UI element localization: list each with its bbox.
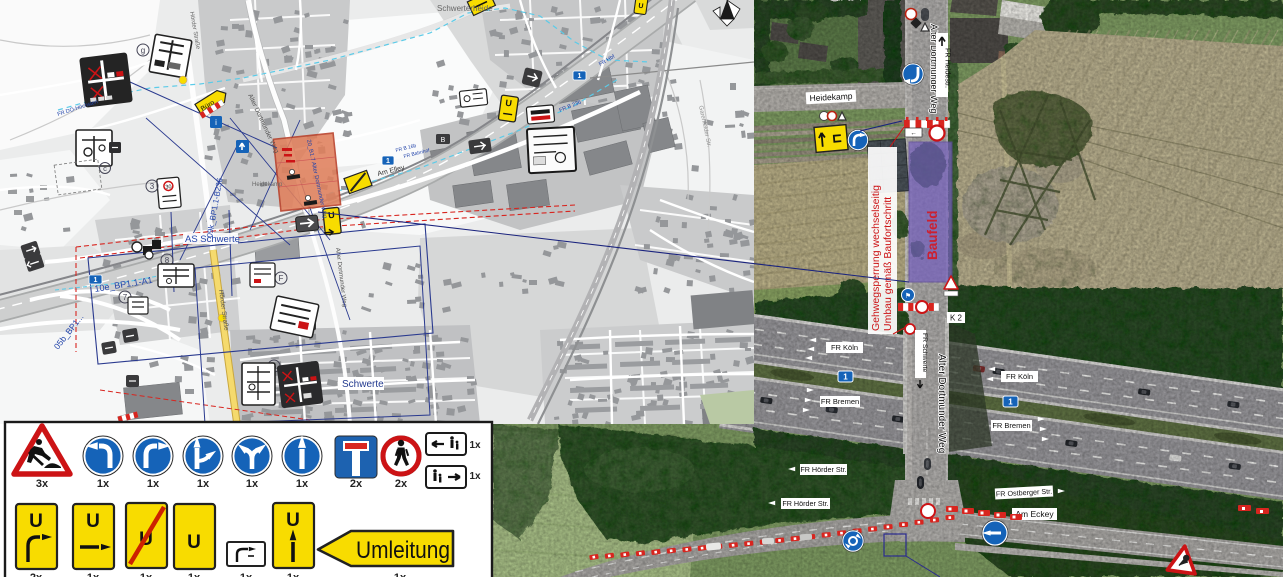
svg-text:2x: 2x <box>350 478 363 490</box>
svg-text:1x: 1x <box>97 478 110 490</box>
svg-text:Schwerterheide: Schwerterheide <box>437 4 493 13</box>
svg-text:FR Hörder Str.: FR Hörder Str. <box>800 465 846 474</box>
svg-text:U: U <box>187 532 201 553</box>
svg-text:1x: 1x <box>469 440 481 451</box>
svg-text:30: 30 <box>165 184 172 191</box>
svg-text:U: U <box>638 3 644 11</box>
svg-text:1x: 1x <box>197 478 210 490</box>
svg-text:1: 1 <box>1008 398 1013 407</box>
svg-text:1x: 1x <box>469 471 481 482</box>
svg-text:1: 1 <box>578 73 582 80</box>
svg-text:U: U <box>286 510 300 531</box>
svg-text:B: B <box>441 137 446 144</box>
svg-text:←: ← <box>910 130 917 137</box>
svg-text:1: 1 <box>843 373 848 382</box>
svg-text:3: 3 <box>150 182 155 191</box>
svg-text:c: c <box>103 164 107 173</box>
svg-text:3x: 3x <box>36 478 49 490</box>
svg-text:7: 7 <box>123 293 128 302</box>
svg-text:⚑: ⚑ <box>905 292 911 300</box>
svg-text:1x: 1x <box>296 478 309 490</box>
svg-text:1x: 1x <box>188 572 201 577</box>
svg-text:1: 1 <box>386 158 390 165</box>
svg-text:g: g <box>141 46 145 55</box>
svg-text:1x: 1x <box>140 572 153 577</box>
svg-text:Baufeld: Baufeld <box>925 210 940 260</box>
svg-text:F: F <box>279 274 284 283</box>
svg-text:FR Hörder Str.: FR Hörder Str. <box>782 499 828 508</box>
svg-text:U: U <box>328 210 336 221</box>
svg-text:U: U <box>505 98 513 109</box>
svg-text:Gehwegsperrung wechselseitig: Gehwegsperrung wechselseitig <box>870 185 882 331</box>
svg-text:2x: 2x <box>395 478 408 490</box>
svg-text:U: U <box>86 511 100 532</box>
svg-text:FR Köln: FR Köln <box>831 343 858 352</box>
svg-text:FR Schwerte: FR Schwerte <box>921 333 928 373</box>
svg-text:K 2: K 2 <box>950 313 963 322</box>
svg-text:2x: 2x <box>30 572 43 577</box>
svg-text:1x: 1x <box>87 572 100 577</box>
svg-text:FR Köln: FR Köln <box>1006 372 1033 381</box>
svg-text:FR Bremen: FR Bremen <box>992 421 1030 430</box>
svg-text:U: U <box>29 511 43 532</box>
svg-text:1x: 1x <box>246 478 259 490</box>
svg-text:Umbau gemäß Baufortschritt: Umbau gemäß Baufortschritt <box>882 197 894 331</box>
svg-text:1x: 1x <box>240 572 253 577</box>
svg-text:FR Bremen: FR Bremen <box>821 397 859 406</box>
svg-text:1x: 1x <box>147 478 160 490</box>
svg-text:Heidekamp: Heidekamp <box>252 182 283 188</box>
svg-text:Schwerte: Schwerte <box>342 379 384 390</box>
svg-text:FR Heidestr.: FR Heidestr. <box>944 48 953 88</box>
svg-text:Alter Dortmunder Weg: Alter Dortmunder Weg <box>936 354 947 453</box>
svg-text:i: i <box>215 118 217 127</box>
svg-text:Umleitung: Umleitung <box>356 537 450 564</box>
svg-text:1x: 1x <box>394 572 407 577</box>
svg-text:1x: 1x <box>287 572 300 577</box>
